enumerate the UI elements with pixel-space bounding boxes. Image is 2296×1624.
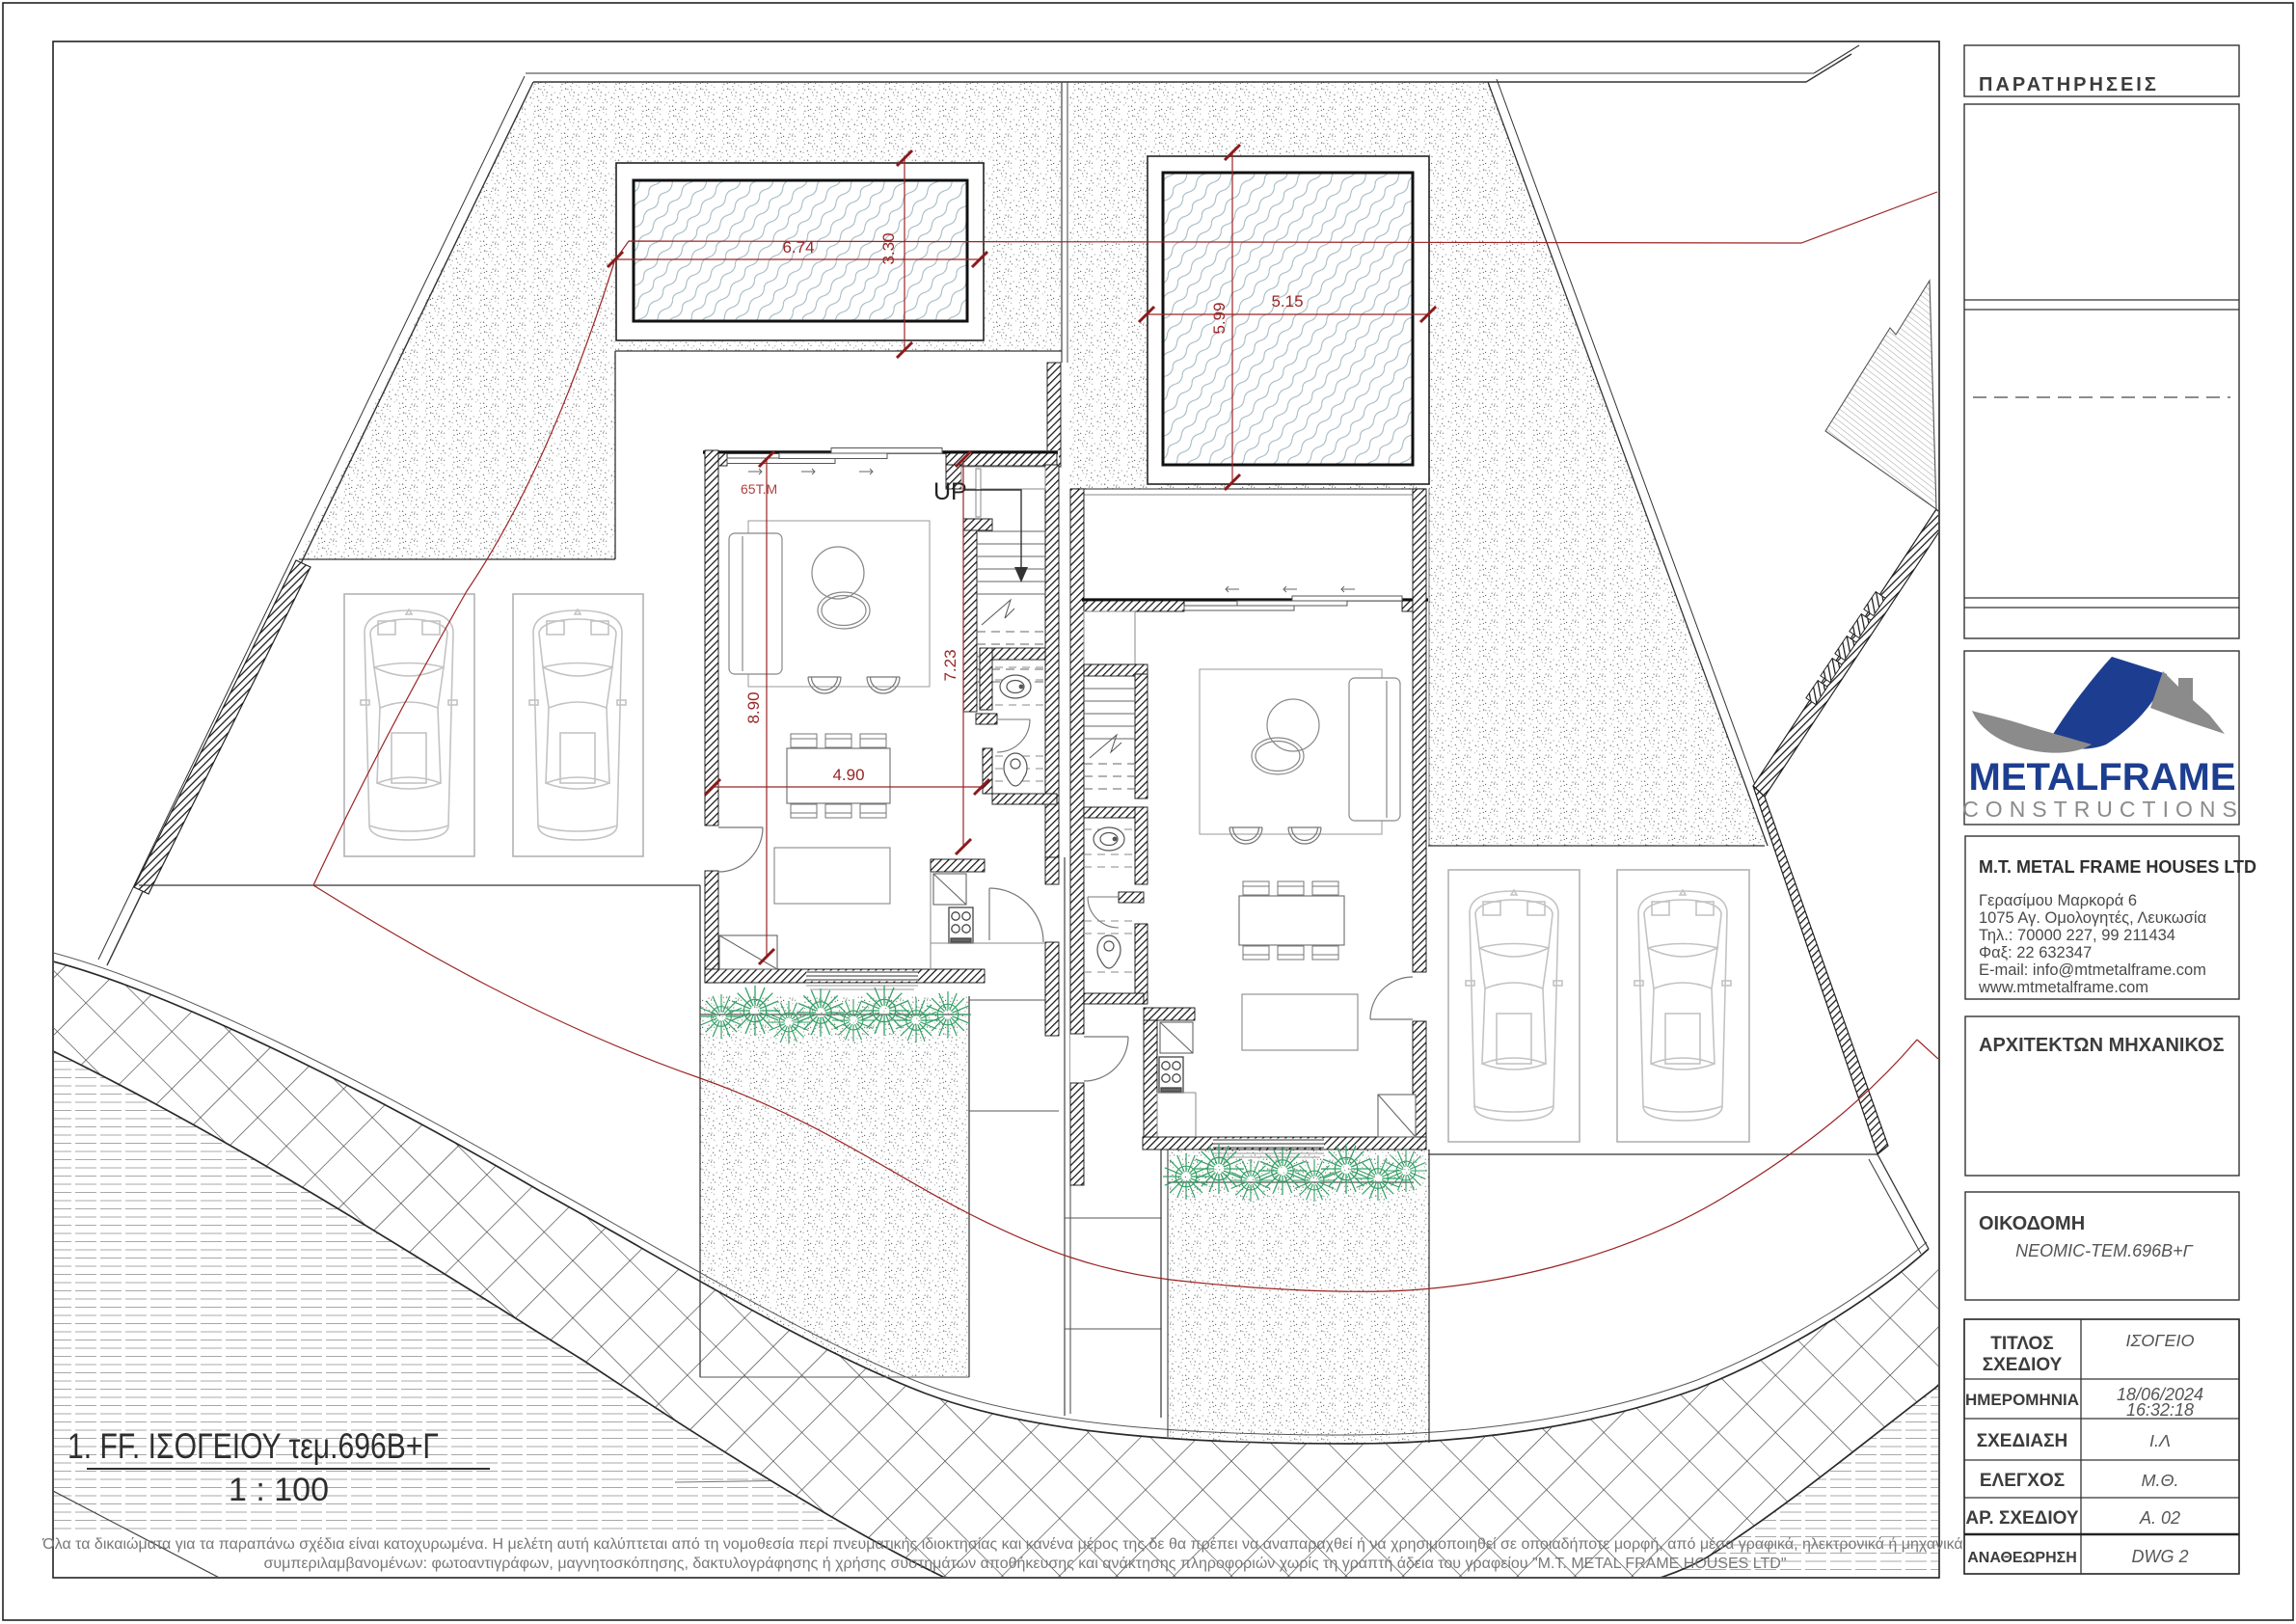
svg-text:Ι.Λ: Ι.Λ	[2149, 1431, 2171, 1450]
svg-text:3.30: 3.30	[879, 232, 898, 264]
svg-text:Μ.Θ.: Μ.Θ.	[2142, 1471, 2179, 1490]
svg-text:CONSTRUCTIONS: CONSTRUCTIONS	[1962, 797, 2244, 822]
svg-text:1 : 100: 1 : 100	[229, 1472, 329, 1508]
svg-text:www.mtmetalframe.com: www.mtmetalframe.com	[1978, 979, 2148, 996]
svg-text:A. 02: A. 02	[2139, 1508, 2180, 1528]
svg-text:συμπεριλαμβανομένων: φωτοαντιγ: συμπεριλαμβανομένων: φωτοαντιγράφων, μαγ…	[263, 1556, 1786, 1572]
svg-text:ΙΣΟΓΕΙΟ: ΙΣΟΓΕΙΟ	[2125, 1331, 2194, 1350]
svg-text:ΕΛΕΓΧΟΣ: ΕΛΕΓΧΟΣ	[1980, 1471, 2065, 1491]
svg-text:ΗΜΕΡΟΜΗΝΙΑ: ΗΜΕΡΟΜΗΝΙΑ	[1965, 1391, 2079, 1409]
svg-text:7.23: 7.23	[941, 649, 959, 681]
svg-text:ΣΧΕΔΙΑΣΗ: ΣΧΕΔΙΑΣΗ	[1977, 1431, 2068, 1451]
svg-text:4.90: 4.90	[832, 766, 864, 784]
svg-text:ΟΙΚΟΔΟΜΗ: ΟΙΚΟΔΟΜΗ	[1979, 1213, 2085, 1234]
svg-text:16:32:18: 16:32:18	[2126, 1400, 2194, 1420]
svg-text:Τηλ.: 70000 227, 99 211434: Τηλ.: 70000 227, 99 211434	[1979, 927, 2175, 944]
svg-text:ΑΡ. ΣΧΕΔΙΟΥ: ΑΡ. ΣΧΕΔΙΟΥ	[1965, 1508, 2078, 1529]
svg-text:ΑΡΧΙΤΕΚΤΩΝ ΜΗΧΑΝΙΚΟΣ: ΑΡΧΙΤΕΚΤΩΝ ΜΗΧΑΝΙΚΟΣ	[1979, 1035, 2225, 1056]
svg-text:METALFRAME: METALFRAME	[1969, 756, 2236, 798]
svg-text:1075 Αγ. Ομολογητές, Λευκωσία: 1075 Αγ. Ομολογητές, Λευκωσία	[1979, 909, 2207, 927]
svg-text:M.T. METAL FRAME HOUSES LTD: M.T. METAL FRAME HOUSES LTD	[1979, 857, 2256, 877]
svg-text:NEOMIC-TEM.696B+Γ: NEOMIC-TEM.696B+Γ	[2015, 1241, 2194, 1260]
svg-text:ΑΝΑΘΕΩΡΗΣΗ: ΑΝΑΘΕΩΡΗΣΗ	[1967, 1550, 2077, 1566]
svg-text:DWG 2: DWG 2	[2131, 1547, 2188, 1566]
svg-text:Φαξ: 22 632347: Φαξ: 22 632347	[1979, 944, 2092, 961]
svg-text:UP: UP	[933, 478, 967, 505]
svg-text:Όλα τα δικαιώματα για τα παραπ: Όλα τα δικαιώματα για τα παραπάνω σχέδια…	[41, 1536, 1962, 1553]
svg-text:8.90: 8.90	[744, 691, 763, 723]
svg-text:1. FF. ΙΣΟΓΕΙΟΥ τεμ.696Β+Γ: 1. FF. ΙΣΟΓΕΙΟΥ τεμ.696Β+Γ	[68, 1426, 439, 1466]
svg-text:6.74: 6.74	[782, 238, 814, 257]
svg-text:Γερασίμου Μαρκορά 6: Γερασίμου Μαρκορά 6	[1979, 892, 2137, 909]
svg-text:65Τ.Μ: 65Τ.Μ	[741, 481, 777, 497]
svg-text:ΣΧΕΔΙΟΥ: ΣΧΕΔΙΟΥ	[1983, 1355, 2063, 1375]
svg-text:ΠΑΡΑΤΗΡΗΣΕΙΣ: ΠΑΡΑΤΗΡΗΣΕΙΣ	[1979, 74, 2159, 95]
svg-text:5.15: 5.15	[1271, 292, 1303, 311]
svg-text:ΤΙΤΛΟΣ: ΤΙΤΛΟΣ	[1990, 1334, 2053, 1354]
svg-text:5.99: 5.99	[1210, 302, 1229, 334]
svg-text:E-mail: info@mtmetalframe.com: E-mail: info@mtmetalframe.com	[1979, 961, 2206, 979]
